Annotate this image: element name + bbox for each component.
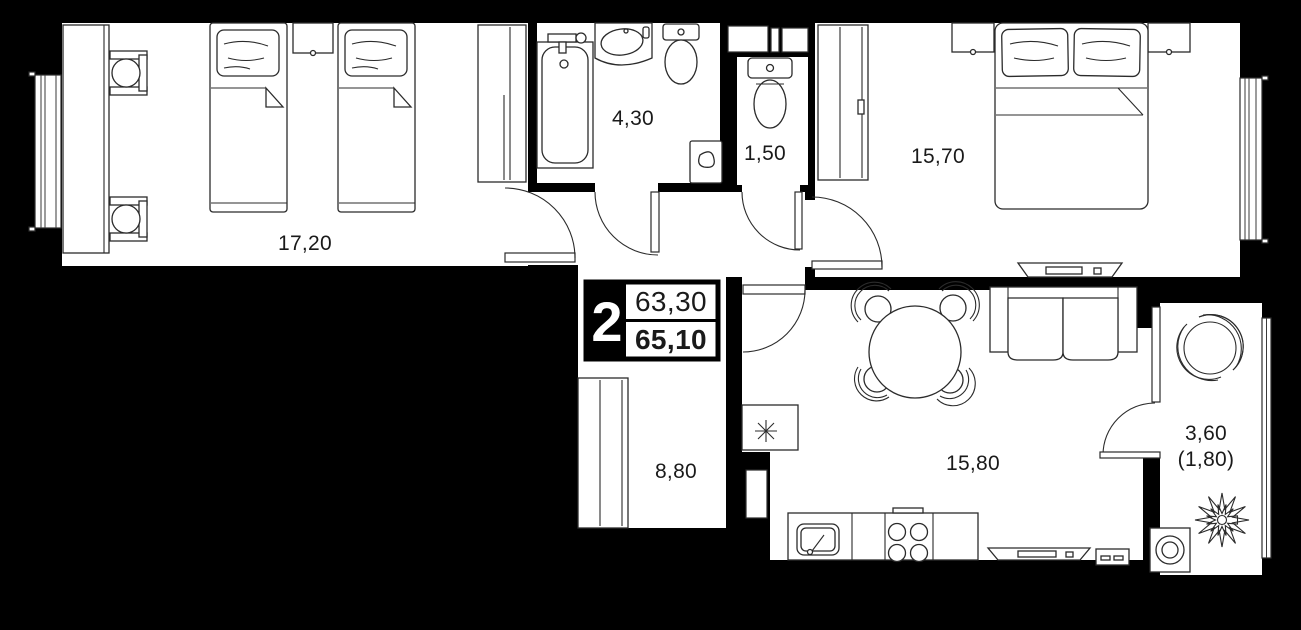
- cabinet-icon-bathroom: [690, 141, 722, 183]
- vent-shaft-1: [728, 26, 768, 52]
- wardrobe-icon-bedroom-1: [478, 25, 526, 182]
- area-label-bedroom-2: 15,70: [911, 145, 965, 168]
- washing-machine-icon: [1150, 528, 1190, 572]
- nightstand-icon-right: [1148, 23, 1190, 55]
- area-label-kitchen-living: 15,80: [946, 452, 1000, 475]
- asterisk-icon: [755, 420, 777, 442]
- area-label-bathroom: 4,30: [612, 107, 654, 130]
- vent-shaft-2: [782, 28, 808, 52]
- sink-icon: [595, 23, 652, 65]
- kitchen-sink-icon: [797, 524, 839, 555]
- bedroom-2-doorway: [805, 200, 815, 267]
- vent-cabinet-icon: [742, 405, 798, 450]
- unit-area-top: 63,30: [635, 286, 707, 317]
- wardrobe-icon-bedroom-2: [818, 25, 868, 180]
- floorplan-page: 17,20 4,30 1,50 15,70 8,80 15,80 3,60 (1…: [0, 0, 1301, 630]
- chair-icon-2: [110, 197, 147, 241]
- area-label-wc: 1,50: [744, 142, 786, 165]
- wardrobe-icon-hallway: [578, 378, 628, 528]
- area-label-hallway: 8,80: [655, 460, 697, 483]
- nightstand-icon-left: [952, 23, 994, 55]
- area-label-balcony-reduced: (1,80): [1178, 448, 1235, 471]
- single-bed-icon-1: [210, 23, 287, 212]
- unit-area-bottom: 65,10: [635, 324, 707, 355]
- vent-shaft-gap: [771, 28, 779, 52]
- vent-shaft-kitchen: [746, 470, 767, 518]
- desk-icon: [63, 25, 109, 253]
- floorplan-canvas: 17,20 4,30 1,50 15,70 8,80 15,80 3,60 (1…: [0, 0, 1301, 630]
- chair-icon-1: [110, 51, 147, 95]
- bathtub-icon: [537, 33, 593, 168]
- area-label-bedroom-1: 17,20: [278, 232, 332, 255]
- bathroom-doorway: [595, 183, 658, 193]
- area-label-balcony: 3,60: [1185, 422, 1227, 445]
- double-bed-icon: [995, 23, 1148, 209]
- nightstand-icon-1: [293, 23, 333, 56]
- dining-table-icon: [869, 306, 961, 398]
- sofa-icon: [990, 287, 1137, 360]
- unit-room-count: 2: [591, 290, 622, 353]
- window-balcony: [1262, 318, 1271, 558]
- hallway-furniture: [578, 378, 628, 528]
- single-bed-icon-2: [338, 23, 415, 212]
- wc-doorway: [742, 185, 800, 193]
- tv-console-icon-bedroom: [1018, 263, 1122, 277]
- media-box-icon: [1096, 549, 1129, 565]
- unit-info-card: 2 63,30 65,10: [586, 282, 718, 359]
- tv-console-icon-living: [988, 548, 1090, 560]
- toilet-icon-bathroom: [663, 24, 699, 84]
